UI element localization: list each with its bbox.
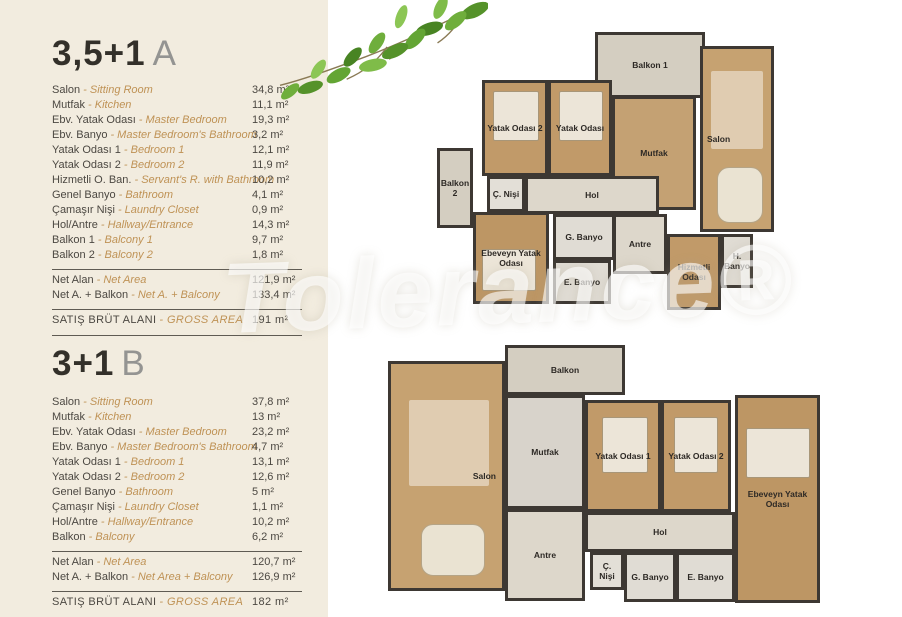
total-area: 133,4 m² [252, 289, 302, 301]
room-e-banyo: E. Banyo [553, 260, 611, 304]
room-antre: Antre [613, 214, 667, 274]
room-name: Yatak Odası [555, 123, 605, 133]
room-label-en: - Sitting Room [83, 84, 153, 96]
gross-row: SATIŞ BRÜT ALANI- GROSS AREA191 m² [52, 314, 302, 330]
room-name: Ebeveyn Yatak Odası [738, 489, 817, 509]
room-name: Salon [703, 134, 731, 144]
room-area: 19,3 m² [252, 114, 302, 126]
spec-row: Genel Banyo- Bathroom5 m² [52, 486, 302, 501]
spec-row: Genel Banyo- Bathroom4,1 m² [52, 189, 302, 204]
room-hol: Hol [585, 512, 735, 552]
room-yatak-odasi-1: Yatak Odası 1 [585, 400, 661, 512]
spec-row: Yatak Odası 1- Bedroom 112,1 m² [52, 144, 302, 159]
plan-a-totals: Net Alan- Net Area121,9 m² Net A. + Balk… [52, 274, 302, 304]
spec-row: Çamaşır Nişi- Laundry Closet1,1 m² [52, 501, 302, 516]
room-name: Ç. Nişi [492, 189, 520, 199]
room-label-tr: Hol/Antre [52, 516, 98, 528]
room-yatak-odasi: Yatak Odası [548, 80, 612, 176]
room-name: Yatak Odası 2 [486, 123, 543, 133]
spec-row: Ebv. Yatak Odası- Master Bedroom19,3 m² [52, 114, 302, 129]
spec-row: Mutfak- Kitchen13 m² [52, 411, 302, 426]
room-area: 1,8 m² [252, 249, 302, 261]
room-name: Mutfak [639, 148, 668, 158]
floor-plan-a: Balkon 1 Yatak Odası 2 Yatak Odası Mutfa… [437, 28, 777, 320]
spec-row: Salon- Sitting Room34,8 m² [52, 84, 302, 99]
room-area: 11,9 m² [252, 159, 302, 171]
spec-row: Yatak Odası 2- Bedroom 212,6 m² [52, 471, 302, 486]
room-label-en: - Balcony 2 [98, 249, 153, 261]
room-salon: Salon [388, 361, 505, 591]
room-area: 10,2 m² [252, 174, 302, 186]
gross-row: SATIŞ BRÜT ALANI- GROSS AREA182 m² [52, 596, 302, 612]
spec-row: Hizmetli O. Ban.- Servant's R. with Bath… [52, 174, 302, 189]
room-name: Yatak Odası 2 [667, 451, 724, 461]
divider [52, 335, 302, 336]
plan-b-code: 3+1 [52, 344, 114, 383]
room-name: Salon [472, 471, 502, 481]
spec-row: Yatak Odası 2- Bedroom 211,9 m² [52, 159, 302, 174]
total-area: 121,9 m² [252, 274, 302, 286]
room-ebeveyn-yatak-odasi: Ebeveyn Yatak Odası [473, 212, 549, 304]
dining-table-graphic [717, 167, 763, 223]
total-label-en: - Net Area + Balcony [131, 571, 232, 583]
room-label-en: - Bedroom 1 [124, 456, 185, 468]
room-area: 10,2 m² [252, 516, 302, 528]
room-label-en: - Hallway/Entrance [101, 219, 193, 231]
gross-area: 182 m² [252, 596, 302, 608]
bed-graphic [746, 428, 810, 478]
plan-b-rows: Salon- Sitting Room37,8 m² Mutfak- Kitch… [52, 396, 302, 546]
room-area: 1,1 m² [252, 501, 302, 513]
room-area: 14,3 m² [252, 219, 302, 231]
total-label-tr: Net Alan [52, 556, 94, 568]
room-name: Antre [628, 239, 652, 249]
room-area: 37,8 m² [252, 396, 302, 408]
room-label-en: - Master Bedroom's Bathroom [110, 129, 256, 141]
room-label-en: - Laundry Closet [118, 204, 199, 216]
room-label-en: - Bedroom 1 [124, 144, 185, 156]
total-row: Net A. + Balkon- Net Area + Balcony126,9… [52, 571, 302, 586]
spec-row: Ebv. Banyo- Master Bedroom's Bathroom3,2… [52, 129, 302, 144]
room-h-banyo: H. Banyo [721, 234, 753, 288]
room-label-tr: Mutfak [52, 99, 85, 111]
room-g-banyo: G. Banyo [624, 552, 676, 602]
plan-b-totals: Net Alan- Net Area120,7 m² Net A. + Balk… [52, 556, 302, 586]
room-hol: Hol [525, 176, 659, 214]
total-label-en: - Net A. + Balcony [131, 289, 220, 301]
total-row: Net Alan- Net Area120,7 m² [52, 556, 302, 571]
room-label-tr: Ebv. Banyo [52, 441, 107, 453]
room-label-en: - Kitchen [88, 411, 131, 423]
room-area: 5 m² [252, 486, 302, 498]
spec-row: Çamaşır Nişi- Laundry Closet0,9 m² [52, 204, 302, 219]
spec-row: Hol/Antre- Hallway/Entrance14,3 m² [52, 219, 302, 234]
total-area: 120,7 m² [252, 556, 302, 568]
leaves-decoration [276, 0, 488, 104]
total-label-en: - Net Area [97, 274, 147, 286]
room-label-en: - Kitchen [88, 99, 131, 111]
room-name: E. Banyo [563, 277, 601, 287]
divider [52, 309, 302, 310]
room-name: Hol [584, 190, 600, 200]
room-label-tr: Balkon 1 [52, 234, 95, 246]
room-camasir-nisi: Ç. Nişi [487, 176, 525, 212]
room-yatak-odasi-2: Yatak Odası 2 [482, 80, 548, 176]
room-label-tr: Yatak Odası 1 [52, 144, 121, 156]
plan-a-variant: A [153, 34, 177, 73]
bed-graphic [674, 417, 718, 473]
dining-table-graphic [421, 524, 485, 576]
room-label-en: - Laundry Closet [118, 501, 199, 513]
spec-row: Ebv. Banyo- Master Bedroom's Bathroom4,7… [52, 441, 302, 456]
gross-label-en: - GROSS AREA [159, 314, 243, 326]
room-name: E. Banyo [686, 572, 724, 582]
room-name: Ebeveyn Yatak Odası [476, 248, 546, 268]
floor-plan-b: Balkon Salon Mutfak Yatak Odası 1 Yatak … [388, 345, 820, 612]
divider [52, 551, 302, 552]
room-label-tr: Hol/Antre [52, 219, 98, 231]
room-area: 3,2 m² [252, 129, 302, 141]
divider [52, 591, 302, 592]
room-label-en: - Bathroom [119, 486, 173, 498]
section-plan-b: 3+1B Salon- Sitting Room37,8 m² Mutfak- … [52, 346, 302, 617]
room-area: 0,9 m² [252, 204, 302, 216]
room-area: 6,2 m² [252, 531, 302, 543]
room-ebeveyn-yatak-odasi: Ebeveyn Yatak Odası [735, 395, 820, 603]
room-label-tr: Çamaşır Nişi [52, 501, 115, 513]
room-area: 4,1 m² [252, 189, 302, 201]
room-label-en: - Bathroom [119, 189, 173, 201]
bed-graphic [493, 91, 539, 141]
room-label-tr: Ebv. Yatak Odası [52, 114, 136, 126]
room-name: Balkon 2 [440, 178, 470, 198]
room-mutfak: Mutfak [505, 395, 585, 509]
room-hizmetli-odasi: Hizmetli Odası [667, 234, 721, 310]
room-name: Balkon 1 [631, 60, 668, 70]
room-label-en: - Bedroom 2 [124, 159, 185, 171]
total-label-tr: Net A. + Balkon [52, 571, 128, 583]
room-label-tr: Hizmetli O. Ban. [52, 174, 131, 186]
gross-label-tr: SATIŞ BRÜT ALANI [52, 596, 156, 608]
room-label-tr: Çamaşır Nişi [52, 204, 115, 216]
gross-label-en: - GROSS AREA [159, 596, 243, 608]
plan-a-gross: SATIŞ BRÜT ALANI- GROSS AREA191 m² [52, 314, 302, 330]
room-area: 4,7 m² [252, 441, 302, 453]
spec-row: Balkon 2- Balcony 21,8 m² [52, 249, 302, 264]
plan-b-gross: SATIŞ BRÜT ALANI- GROSS AREA182 m² [52, 596, 302, 612]
divider [52, 269, 302, 270]
room-label-tr: Ebv. Banyo [52, 129, 107, 141]
room-name: H. Banyo [723, 251, 751, 271]
room-balkon: Balkon [505, 345, 625, 395]
plan-a-rows: Salon- Sitting Room34,8 m² Mutfak- Kitch… [52, 84, 302, 264]
spec-row: Salon- Sitting Room37,8 m² [52, 396, 302, 411]
room-balkon-2: Balkon 2 [437, 148, 473, 228]
room-salon: Salon [700, 46, 774, 232]
room-camasir-nisi: Ç. Nişi [590, 552, 624, 590]
total-label-tr: Net A. + Balkon [52, 289, 128, 301]
total-label-tr: Net Alan [52, 274, 94, 286]
room-label-en: - Master Bedroom's Bathroom [110, 441, 256, 453]
room-name: G. Banyo [564, 232, 603, 242]
room-label-tr: Genel Banyo [52, 189, 116, 201]
room-g-banyo: G. Banyo [553, 214, 615, 260]
bed-graphic [602, 417, 648, 473]
section-plan-a: 3,5+1A Salon- Sitting Room34,8 m² Mutfak… [52, 36, 302, 340]
room-label-en: - Master Bedroom [139, 114, 227, 126]
room-label-tr: Balkon [52, 531, 86, 543]
gross-area: 191 m² [252, 314, 302, 326]
room-yatak-odasi-2: Yatak Odası 2 [661, 400, 731, 512]
room-name: Balkon [550, 365, 580, 375]
room-area: 9,7 m² [252, 234, 302, 246]
room-label-tr: Yatak Odası 2 [52, 471, 121, 483]
room-name: Antre [533, 550, 557, 560]
room-label-en: - Balcony 1 [98, 234, 153, 246]
total-label-en: - Net Area [97, 556, 147, 568]
room-label-tr: Ebv. Yatak Odası [52, 426, 136, 438]
room-label-tr: Salon [52, 84, 80, 96]
room-name: G. Banyo [630, 572, 669, 582]
spec-row: Balkon 1- Balcony 19,7 m² [52, 234, 302, 249]
spec-row: Mutfak- Kitchen11,1 m² [52, 99, 302, 114]
room-area: 23,2 m² [252, 426, 302, 438]
room-area: 13,1 m² [252, 456, 302, 468]
bed-graphic [559, 91, 603, 141]
room-name: Hol [652, 527, 668, 537]
room-label-tr: Yatak Odası 1 [52, 456, 121, 468]
plan-a-title: 3,5+1A [52, 36, 302, 72]
plan-a-code: 3,5+1 [52, 34, 146, 73]
plan-b-title: 3+1B [52, 346, 302, 382]
spec-row: Ebv. Yatak Odası- Master Bedroom23,2 m² [52, 426, 302, 441]
room-label-tr: Mutfak [52, 411, 85, 423]
room-name: Ç. Nişi [593, 561, 621, 581]
room-label-en: - Hallway/Entrance [101, 516, 193, 528]
room-area: 13 m² [252, 411, 302, 423]
spec-row: Balkon- Balcony6,2 m² [52, 531, 302, 546]
brochure-page: 3,5+1A Salon- Sitting Room34,8 m² Mutfak… [0, 0, 902, 617]
gross-label-tr: SATIŞ BRÜT ALANI [52, 314, 156, 326]
spec-row: Hol/Antre- Hallway/Entrance10,2 m² [52, 516, 302, 531]
total-area: 126,9 m² [252, 571, 302, 583]
room-area: 12,1 m² [252, 144, 302, 156]
room-name: Yatak Odası 1 [594, 451, 651, 461]
room-label-en: - Sitting Room [83, 396, 153, 408]
room-antre: Antre [505, 509, 585, 601]
room-label-tr: Genel Banyo [52, 486, 116, 498]
spec-row: Yatak Odası 1- Bedroom 113,1 m² [52, 456, 302, 471]
room-label-tr: Yatak Odası 2 [52, 159, 121, 171]
room-e-banyo: E. Banyo [676, 552, 735, 602]
room-label-en: - Bedroom 2 [124, 471, 185, 483]
room-label-tr: Salon [52, 396, 80, 408]
room-area: 12,6 m² [252, 471, 302, 483]
room-name: Hizmetli Odası [670, 262, 718, 282]
total-row: Net A. + Balkon- Net A. + Balcony133,4 m… [52, 289, 302, 304]
room-label-en: - Master Bedroom [139, 426, 227, 438]
total-row: Net Alan- Net Area121,9 m² [52, 274, 302, 289]
room-label-tr: Balkon 2 [52, 249, 95, 261]
room-name: Mutfak [530, 447, 559, 457]
plan-b-variant: B [121, 344, 145, 383]
room-label-en: - Balcony [89, 531, 135, 543]
